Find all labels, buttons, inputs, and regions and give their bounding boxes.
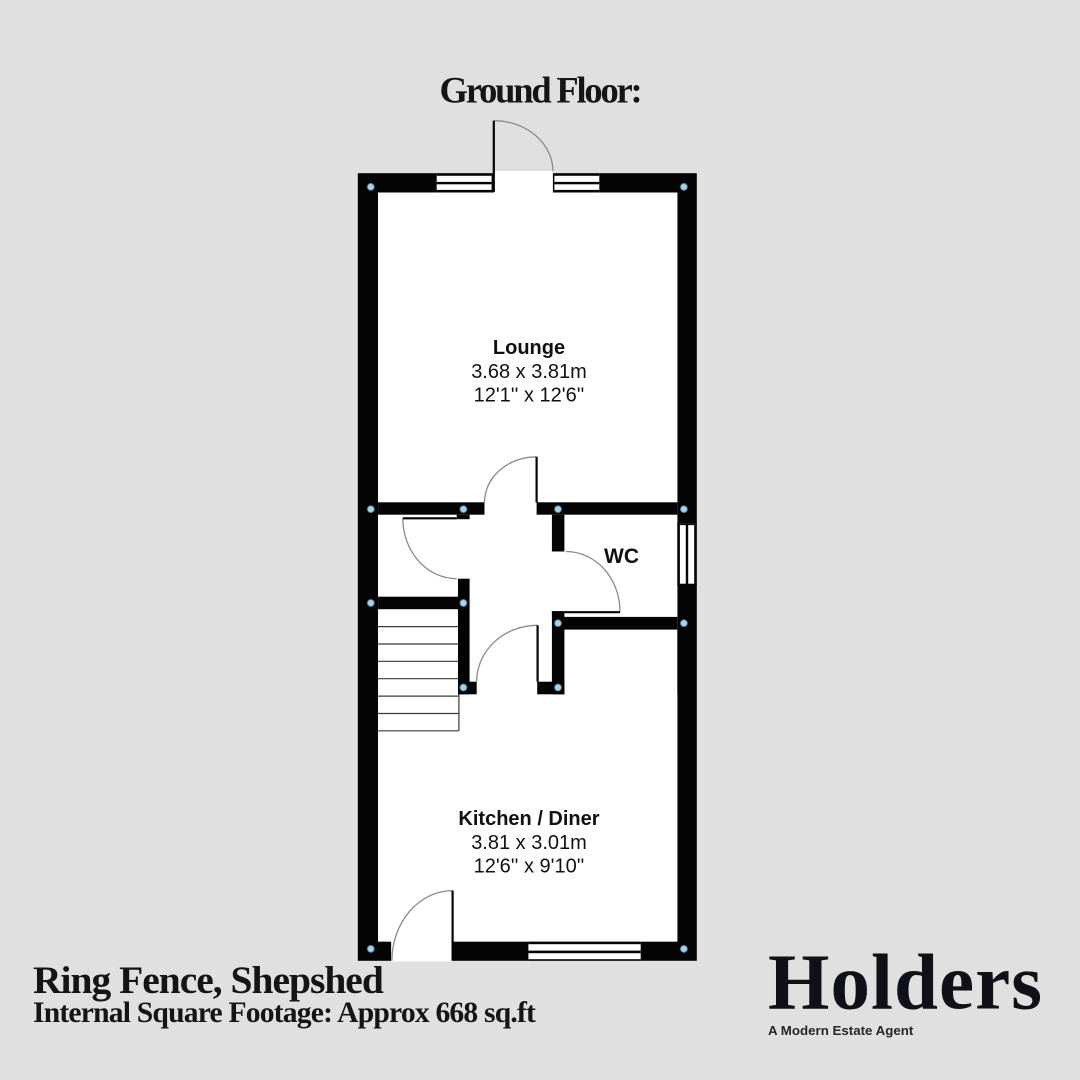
svg-text:3.68 x 3.81m: 3.68 x 3.81m	[471, 361, 587, 383]
svg-text:A Modern Estate Agent: A Modern Estate Agent	[768, 1023, 914, 1038]
svg-text:3.81 x 3.01m: 3.81 x 3.01m	[471, 832, 587, 854]
svg-text:Kitchen / Diner: Kitchen / Diner	[458, 808, 599, 830]
svg-text:Holders: Holders	[768, 940, 1042, 1027]
svg-text:Ground Floor:: Ground Floor:	[440, 70, 641, 111]
svg-text:Internal Square Footage: Appro: Internal Square Footage: Approx 668 sq.f…	[33, 997, 536, 1029]
svg-text:Ring Fence, Shepshed: Ring Fence, Shepshed	[33, 958, 384, 1002]
svg-text:12'6'' x 9'10'': 12'6'' x 9'10''	[474, 856, 585, 878]
svg-text:Lounge: Lounge	[493, 337, 565, 359]
svg-text:12'1'' x 12'6'': 12'1'' x 12'6''	[474, 385, 585, 407]
svg-text:WC: WC	[604, 545, 639, 568]
